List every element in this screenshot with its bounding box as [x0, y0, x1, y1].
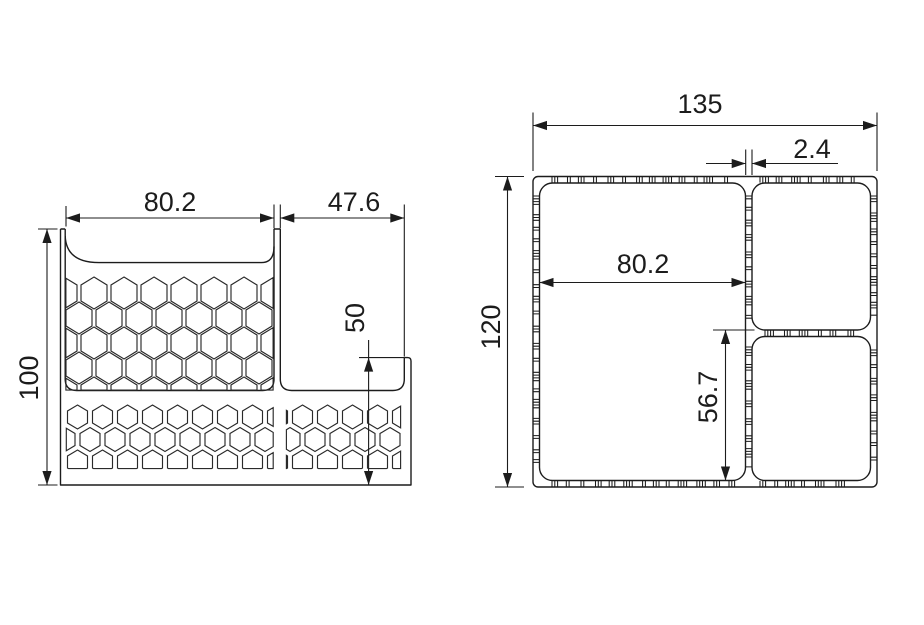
dim-front-right-wall-height-label: 50 — [340, 303, 370, 333]
top-outer-shell — [533, 177, 877, 488]
dim-front-opening-width-label: 80.2 — [144, 187, 197, 217]
dim-top-left-compartment-width: 80.2 — [540, 249, 746, 287]
wall-hatch-ticks — [534, 177, 877, 487]
front-hex-panel — [66, 277, 273, 390]
front-panel-top-dip — [65, 236, 274, 263]
dim-top-overall-depth: 120 — [476, 177, 524, 488]
generated-detail — [534, 177, 877, 487]
top-left-compartment — [540, 183, 746, 481]
dim-front-opening-width: 80.2 — [66, 187, 280, 229]
top-lower-right-compartment — [752, 337, 871, 481]
generated-detail — [66, 405, 400, 469]
top-view: 135 2.4 120 80.2 56.7 — [476, 89, 877, 487]
dim-top-left-compartment-width-label: 80.2 — [617, 249, 670, 279]
front-view: 80.2 47.6 100 50 — [14, 187, 411, 485]
dim-top-wall-thickness-label: 2.4 — [793, 134, 831, 164]
top-upper-right-compartment — [752, 183, 871, 330]
front-hex-band — [66, 405, 400, 469]
dim-top-overall-depth-label: 120 — [476, 304, 506, 349]
dim-front-overall-height-label: 100 — [14, 355, 44, 400]
dim-front-right-opening-width-label: 47.6 — [328, 187, 381, 217]
dim-front-right-wall-height: 50 — [340, 303, 404, 485]
dim-top-rear-compartment-depth-label: 56.7 — [693, 371, 723, 424]
front-outer-profile — [61, 229, 412, 485]
dim-top-overall-width-label: 135 — [677, 89, 722, 119]
technical-drawing: 80.2 47.6 100 50 — [0, 0, 924, 625]
dim-front-overall-height: 100 — [14, 229, 58, 485]
dim-top-wall-thickness: 2.4 — [706, 134, 838, 175]
generated-detail — [66, 277, 273, 390]
drawing-canvas: 80.2 47.6 100 50 — [0, 0, 924, 625]
